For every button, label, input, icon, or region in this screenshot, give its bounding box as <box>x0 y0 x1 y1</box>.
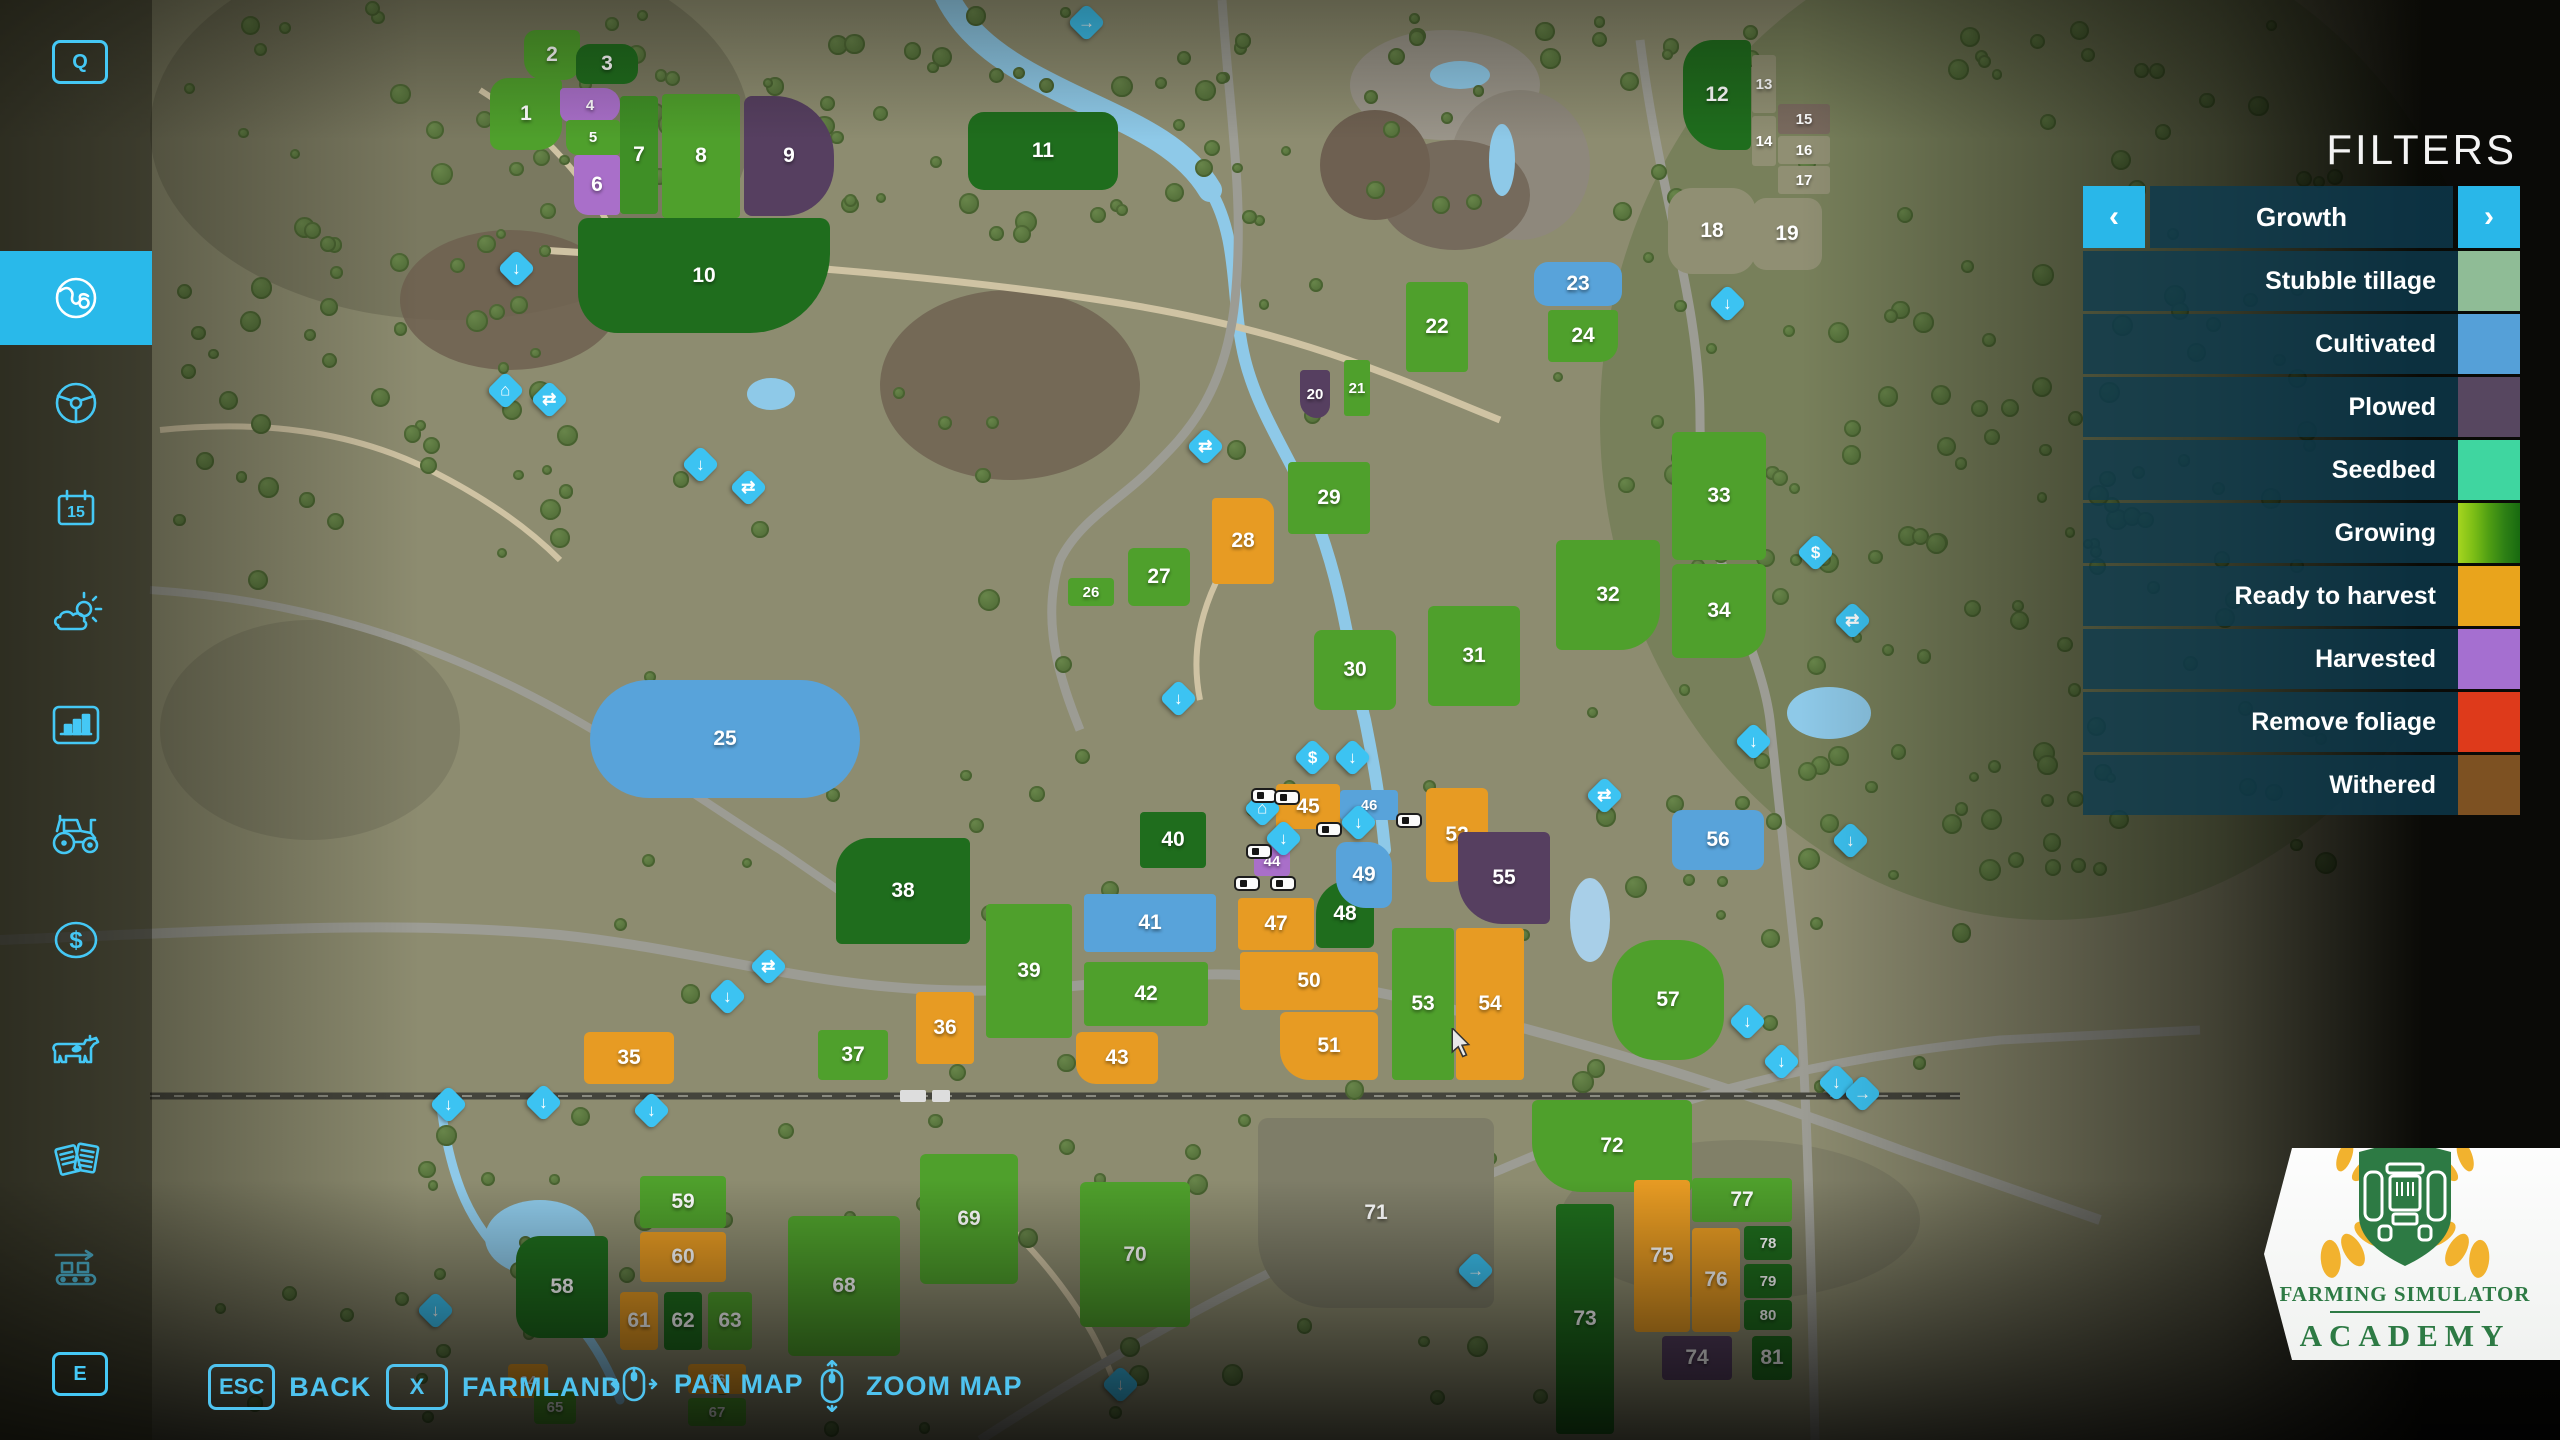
cow-icon <box>46 1028 106 1076</box>
steering-wheel-icon <box>50 377 102 429</box>
icon-glyph: ⌂ <box>1257 800 1267 817</box>
sellpoint-icon[interactable]: ↓ <box>1708 284 1746 322</box>
filter-row-harvested[interactable]: Harvested <box>2083 629 2520 689</box>
logo-line1: FARMING SIMULATOR <box>2280 1282 2531 1307</box>
sidebar-item-calendar[interactable]: 15 <box>0 463 152 557</box>
vehicle-marker[interactable] <box>1248 846 1270 857</box>
filters-panel: FILTERS ‹ Growth › Stubble tillageCultiv… <box>2083 186 2520 818</box>
sellpoint-icon[interactable]: ↓ <box>632 1091 670 1129</box>
icon-glyph: ↓ <box>1723 295 1732 312</box>
filter-label: Cultivated <box>2083 314 2458 374</box>
production-point-icon[interactable]: → <box>1067 3 1105 41</box>
sellpoint-icon[interactable]: ↓ <box>1333 738 1371 776</box>
sellpoint-icon[interactable]: ↓ <box>708 977 746 1015</box>
vehicle-window <box>1252 848 1259 855</box>
filter-color-swatch <box>2458 755 2520 815</box>
filter-label: Seedbed <box>2083 440 2458 500</box>
filter-color-swatch <box>2458 566 2520 626</box>
sidebar-item-vehicles[interactable] <box>0 356 152 450</box>
icon-glyph: ⇄ <box>1198 438 1212 455</box>
vehicle-window <box>1402 817 1409 824</box>
filter-category-label: Growth <box>2150 186 2453 248</box>
icon-glyph: ⌂ <box>500 382 510 399</box>
back-button[interactable]: ESC BACK <box>208 1364 371 1410</box>
icon-glyph: ↓ <box>444 1096 453 1113</box>
icon-glyph: → <box>1467 1262 1484 1279</box>
filter-rows: Stubble tillageCultivatedPlowedSeedbedGr… <box>2083 251 2520 815</box>
filter-label: Plowed <box>2083 377 2458 437</box>
visitor-icon[interactable]: ⇄ <box>530 380 568 418</box>
farmland-button[interactable]: X FARMLAND <box>386 1364 621 1410</box>
logo-badge: FARMING SIMULATOR ACADEMY <box>2250 1118 2560 1390</box>
visitor-icon[interactable]: ⇄ <box>749 947 787 985</box>
filter-next-button[interactable]: › <box>2458 186 2520 248</box>
production-point-icon[interactable]: → <box>1456 1251 1494 1289</box>
icon-glyph: ↓ <box>1846 832 1855 849</box>
sellpoint-icon[interactable]: ↓ <box>1762 1042 1800 1080</box>
filter-row-ready-to-harvest[interactable]: Ready to harvest <box>2083 566 2520 626</box>
calendar-icon: 15 <box>50 484 102 536</box>
sidebar-item-map[interactable] <box>0 251 152 345</box>
sellpoint-icon[interactable]: ↓ <box>1264 819 1302 857</box>
icon-glyph: ↓ <box>723 988 732 1005</box>
dollar-icon: $ <box>50 916 102 964</box>
logo-line2: ACADEMY <box>2300 1318 2511 1354</box>
visitor-icon[interactable]: ⇄ <box>1585 776 1623 814</box>
conveyor-icon <box>48 1243 104 1293</box>
icon-glyph: ↓ <box>1279 830 1288 847</box>
sellpoint-icon[interactable]: ↓ <box>1734 722 1772 760</box>
filter-label: Withered <box>2083 755 2458 815</box>
sidebar-item-weather[interactable] <box>0 568 152 662</box>
vehicle-window <box>1276 880 1283 887</box>
vehicle-marker[interactable] <box>1272 878 1294 889</box>
filter-label: Harvested <box>2083 629 2458 689</box>
sidebar-item-garage[interactable] <box>0 786 152 880</box>
logo-crest <box>2265 1130 2545 1280</box>
filter-color-swatch <box>2458 440 2520 500</box>
icon-glyph: ↓ <box>696 456 705 473</box>
filter-row-growing[interactable]: Growing <box>2083 503 2520 563</box>
icon-glyph: ↓ <box>1174 690 1183 707</box>
sidebar-item-finances[interactable]: $ <box>0 893 152 987</box>
farmhouse-icon[interactable]: ⌂ <box>486 371 524 409</box>
vehicle-marker[interactable] <box>1253 790 1275 801</box>
filter-row-cultivated[interactable]: Cultivated <box>2083 314 2520 374</box>
vehicle-marker[interactable] <box>1318 824 1340 835</box>
filters-title: FILTERS <box>2326 126 2517 174</box>
sellpoint-icon[interactable]: ↓ <box>497 249 535 287</box>
fuel-station-icon[interactable]: $ <box>1293 738 1331 776</box>
filter-color-swatch <box>2458 314 2520 374</box>
sellpoint-icon[interactable]: ↓ <box>524 1083 562 1121</box>
visitor-icon[interactable]: ⇄ <box>729 468 767 506</box>
icon-glyph: $ <box>1308 749 1317 766</box>
vehicle-window <box>1322 826 1329 833</box>
svg-text:15: 15 <box>67 504 85 521</box>
filter-color-swatch <box>2458 377 2520 437</box>
icon-glyph: ↓ <box>431 1302 440 1319</box>
vehicle-window <box>1257 792 1264 799</box>
filter-color-swatch <box>2458 503 2520 563</box>
sellpoint-icon[interactable]: ↓ <box>1339 803 1377 841</box>
pan-map-label: PAN MAP <box>674 1369 804 1400</box>
globe-icon <box>50 272 102 324</box>
icon-glyph: ⇄ <box>1597 787 1611 804</box>
mouse-cursor <box>1449 1028 1475 1063</box>
vehicle-marker[interactable] <box>1236 878 1258 889</box>
filter-row-plowed[interactable]: Plowed <box>2083 377 2520 437</box>
zoom-map-label: ZOOM MAP <box>866 1371 1023 1402</box>
filter-row-seedbed[interactable]: Seedbed <box>2083 440 2520 500</box>
filter-row-stubble-tillage[interactable]: Stubble tillage <box>2083 251 2520 311</box>
filter-label: Growing <box>2083 503 2458 563</box>
sidebar-item-animals[interactable] <box>0 1005 152 1099</box>
farmland-label: FARMLAND <box>462 1372 621 1403</box>
filter-prev-button[interactable]: ‹ <box>2083 186 2145 248</box>
icon-glyph: ⇄ <box>761 958 775 975</box>
x-key-badge: X <box>386 1364 448 1410</box>
filter-color-swatch <box>2458 251 2520 311</box>
icon-glyph: ⇄ <box>1845 612 1859 629</box>
tractor-icon <box>47 808 105 858</box>
back-label: BACK <box>289 1372 371 1403</box>
icon-glyph: $ <box>1811 544 1820 561</box>
bar-chart-icon <box>49 701 103 749</box>
visitor-icon[interactable]: ⇄ <box>1186 427 1224 465</box>
icon-glyph: → <box>1078 14 1095 31</box>
zoom-map-control[interactable]: ZOOM MAP <box>812 1360 1023 1412</box>
sellpoint-icon[interactable]: ↓ <box>1159 679 1197 717</box>
icon-glyph: ↓ <box>1777 1053 1786 1070</box>
vehicle-window <box>1240 880 1247 887</box>
farming-simulator-academy-logo: FARMING SIMULATOR ACADEMY <box>2250 1118 2560 1390</box>
documents-icon <box>48 1135 104 1185</box>
sidebar: Q 15 <box>0 0 152 1440</box>
sellpoint-icon[interactable]: ↓ <box>1728 1002 1766 1040</box>
sidebar-item-contracts[interactable] <box>0 1113 152 1207</box>
icon-glyph: ↓ <box>512 260 521 277</box>
sellpoint-icon[interactable]: ↓ <box>429 1085 467 1123</box>
sellpoint-icon[interactable]: ↓ <box>1831 821 1869 859</box>
icon-glyph: ⇄ <box>741 479 755 496</box>
icon-glyph: ↓ <box>539 1094 548 1111</box>
sellpoint-icon[interactable]: ↓ <box>681 445 719 483</box>
vehicle-window <box>1280 794 1287 801</box>
svg-text:$: $ <box>69 927 83 954</box>
icon-glyph: ↓ <box>1354 814 1363 831</box>
filter-color-swatch <box>2458 692 2520 752</box>
vehicle-marker[interactable] <box>1398 815 1420 826</box>
filter-row-remove-foliage[interactable]: Remove foliage <box>2083 692 2520 752</box>
game-screen: 1234567891011121314151617181920212223242… <box>0 0 2560 1440</box>
filter-label: Remove foliage <box>2083 692 2458 752</box>
vehicle-marker[interactable] <box>1276 792 1298 803</box>
mouse-zoom-icon <box>812 1360 852 1412</box>
icon-glyph: ↓ <box>1832 1074 1841 1091</box>
icon-glyph: ↓ <box>1348 749 1357 766</box>
weather-icon <box>48 589 104 641</box>
filter-category-header: ‹ Growth › <box>2083 186 2520 248</box>
hotkey-q-badge: Q <box>52 40 108 84</box>
visitor-icon[interactable]: ⇄ <box>1833 601 1871 639</box>
filter-label: Ready to harvest <box>2083 566 2458 626</box>
fuel-station-icon[interactable]: $ <box>1796 533 1834 571</box>
mouse-pan-icon <box>608 1360 660 1408</box>
logo-divider <box>2330 1311 2480 1313</box>
pan-map-control[interactable]: PAN MAP <box>608 1360 804 1408</box>
filter-row-withered[interactable]: Withered <box>2083 755 2520 815</box>
filter-color-swatch <box>2458 629 2520 689</box>
sellpoint-icon[interactable]: ↓ <box>416 1291 454 1329</box>
icon-glyph: ↓ <box>1749 733 1758 750</box>
esc-key-badge: ESC <box>208 1364 275 1410</box>
sidebar-item-statistics[interactable] <box>0 678 152 772</box>
filter-label: Stubble tillage <box>2083 251 2458 311</box>
icon-glyph: ⇄ <box>542 391 556 408</box>
icon-glyph: ↓ <box>647 1102 656 1119</box>
sidebar-item-production[interactable] <box>0 1221 152 1315</box>
hotkey-q-label: Q <box>72 51 88 74</box>
icon-glyph: ↓ <box>1743 1013 1752 1030</box>
icon-glyph: → <box>1854 1085 1871 1102</box>
bottom-hotkey-bar: ESC BACK X FARMLAND PAN MAP ZOOM MAP <box>0 1358 2560 1418</box>
